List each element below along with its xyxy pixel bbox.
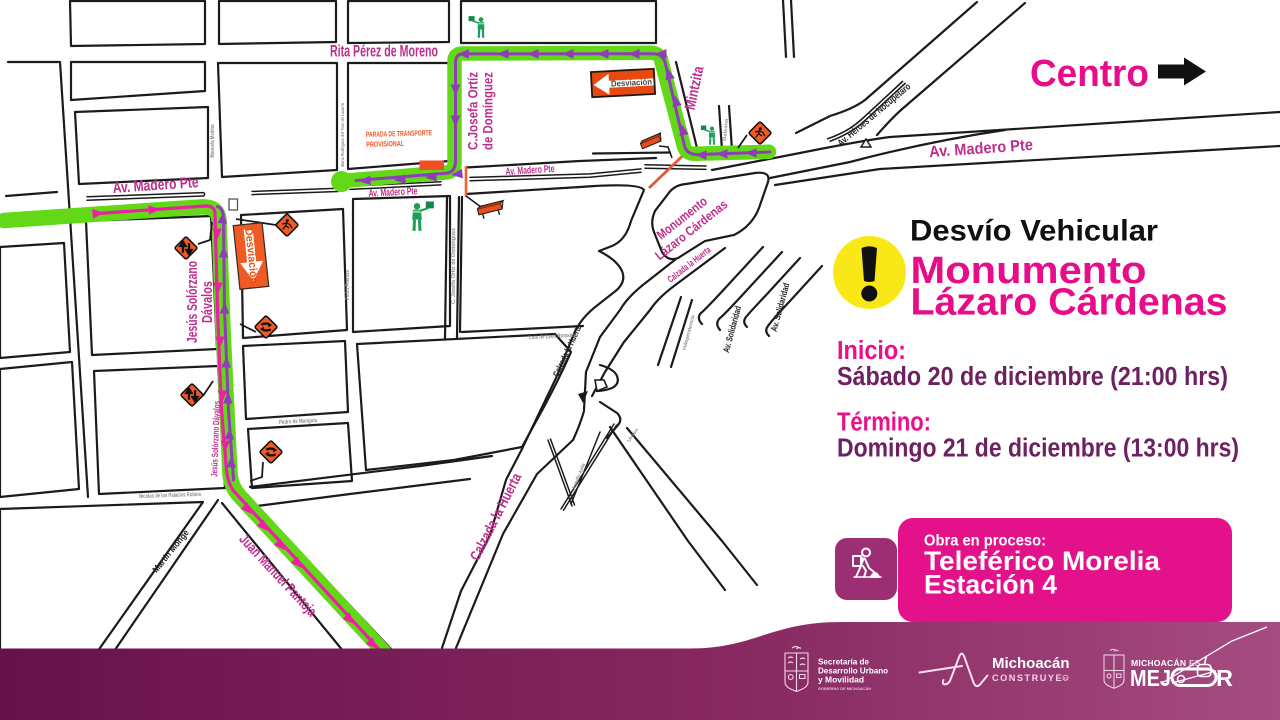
svg-text:R: R	[1216, 665, 1233, 691]
svg-text:CONSTRUYE: CONSTRUYE	[992, 673, 1063, 683]
svg-text:Michoacán: Michoacán	[992, 655, 1070, 672]
svg-text:Rita Pérez de Moreno: Rita Pérez de Moreno	[330, 43, 438, 61]
svg-text:Inicio:: Inicio:	[837, 337, 906, 365]
svg-text:Término:: Término:	[837, 409, 931, 437]
svg-text:PROVISIONAL: PROVISIONAL	[366, 139, 404, 149]
svg-text:Estación 4: Estación 4	[924, 570, 1057, 600]
svg-text:C.Josefa Ortíz: C.Josefa Ortíz	[466, 72, 481, 150]
svg-text:Desvío Vehicular: Desvío Vehicular	[910, 215, 1159, 248]
svg-text:Jesús Solórzano: Jesús Solórzano	[185, 261, 201, 343]
svg-text:Av. Madero Pte: Av. Madero Pte	[368, 185, 418, 200]
svg-text:y Movilidad: y Movilidad	[818, 676, 864, 685]
svg-text:Centro: Centro	[1030, 53, 1149, 95]
svg-text:María Rodríguez del Toro de La: María Rodríguez del Toro de Lazarín	[340, 103, 345, 167]
svg-text:GOBIERNO DE MICHOACÁN: GOBIERNO DE MICHOACÁN	[818, 686, 871, 691]
svg-text:Manuela Medina: Manuela Medina	[210, 124, 216, 158]
svg-text:Desarrollo Urbano: Desarrollo Urbano	[818, 667, 888, 676]
svg-text:PARADA DE TRANSPORTE: PARADA DE TRANSPORTE	[366, 128, 432, 139]
svg-text:Sábado 20 de diciembre (21:00: Sábado 20 de diciembre (21:00 hrs)	[837, 363, 1228, 391]
svg-text:C. Josefa Ortiz de Domínguez: C. Josefa Ortiz de Domínguez	[451, 228, 457, 304]
svg-text:MEJ: MEJ	[1130, 665, 1171, 691]
svg-text:Lázaro Cárdenas: Lázaro Cárdenas	[911, 282, 1228, 324]
svg-text:Pedro Fuentes: Pedro Fuentes	[345, 270, 351, 300]
svg-text:R: R	[1064, 676, 1067, 681]
svg-text:de Domínguez: de Domínguez	[481, 72, 496, 150]
svg-text:Dávalos: Dávalos	[200, 281, 216, 323]
svg-text:Domingo 21 de diciembre (13:00: Domingo 21 de diciembre (13:00 hrs)	[837, 435, 1239, 463]
svg-text:Desviación: Desviación	[611, 76, 652, 88]
svg-text:Secretaría de: Secretaría de	[818, 658, 870, 667]
